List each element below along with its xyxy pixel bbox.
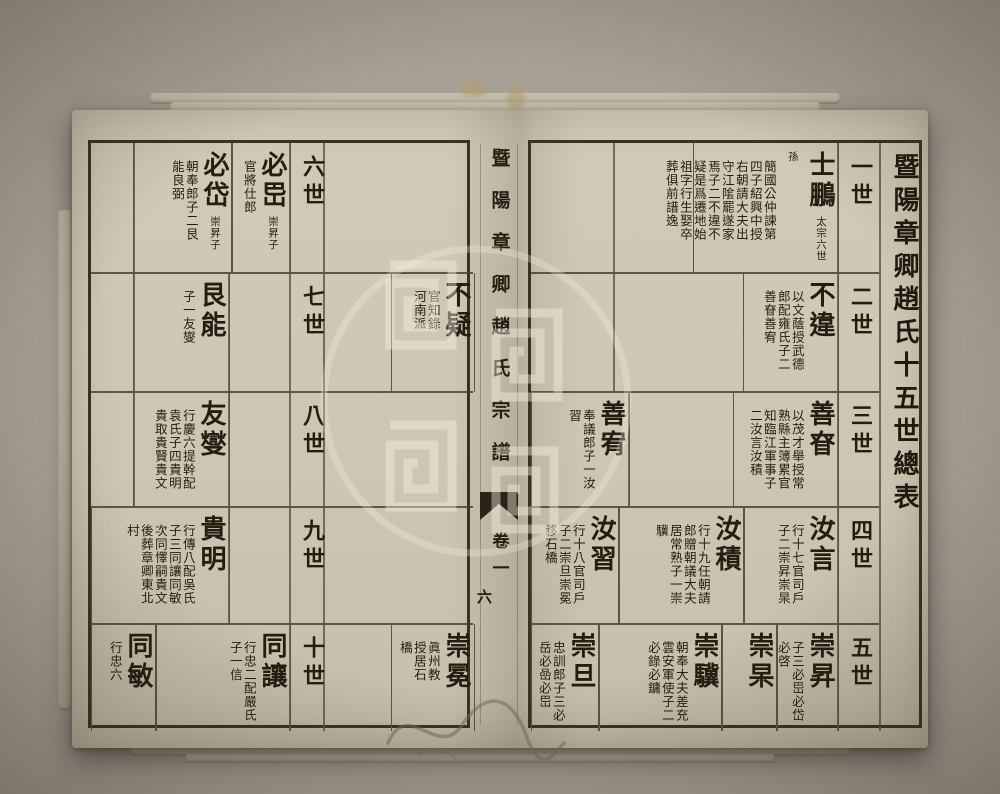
page-stack-edge-bottom2 xyxy=(185,754,775,763)
name-column: 艮能 xyxy=(197,281,225,384)
person-name: 崇杲 xyxy=(745,632,774,692)
generation-label: 七世 xyxy=(296,285,328,341)
genealogy-entry-cell: 不疑官知錄河南派 xyxy=(391,273,475,392)
entry-text: 崇驥朝奉大夫差充雲安軍使子二必錄必鏞 xyxy=(646,632,718,723)
person-name: 不違 xyxy=(806,281,835,341)
genealogy-entry-cell: 崇杲 xyxy=(721,624,778,731)
entry-text: 不違以文蔭授武德郎配雍氏子二善眘善宥 xyxy=(762,281,834,384)
genealogy-entry-cell: 同敏行忠六 xyxy=(91,624,157,731)
name-column: 善眘 xyxy=(806,400,834,499)
entry-annotation: 以茂才舉授常熟縣主簿累官知臨江軍事子二汝言汝積 xyxy=(748,400,804,493)
genealogy-entry-cell: 同讓行忠二配嚴氏子一信 xyxy=(155,624,291,731)
name-column: 汝習 xyxy=(587,515,615,616)
genealogy-entry-cell: 貴明行傳八配吳氏子三同讓同敏次同懌嗣貴文後葬章卿東北村 xyxy=(91,507,230,624)
page-stack-edge-left xyxy=(58,210,71,710)
genealogy-entry-cell: 崇昇子三必岊必岱必啓 xyxy=(776,624,839,731)
entry-text: 善眘以茂才舉授常熟縣主簿累官知臨江軍事子二汝言汝積 xyxy=(748,400,834,499)
person-name: 士鵬 xyxy=(806,151,835,211)
name-column: 必岱崇昇子 xyxy=(200,151,228,265)
genealogy-entry-cell: 崇旦忠訓郎子三必岳必嵒必岊 xyxy=(531,624,600,731)
genealogy-entry-cell: 友燮行慶六提幹配袁氏子四貴明貴取貴賢貴文 xyxy=(133,392,230,507)
entry-annotation: 行十九任朝請郎贈朝議大夫居常熟子一崇驥 xyxy=(654,515,710,608)
generation-label-cell: 七世 xyxy=(289,273,323,392)
person-name: 貴明 xyxy=(197,515,226,575)
person-name: 崇冕 xyxy=(442,632,471,692)
name-column: 貴明 xyxy=(197,515,225,616)
entry-text: 友燮行慶六提幹配袁氏子四貴明貴取貴賢貴文 xyxy=(153,400,225,499)
generation-label: 八世 xyxy=(296,404,328,460)
genealogy-entry-cell: 崇驥朝奉大夫差充雲安軍使子二必錄必鏞 xyxy=(598,624,723,731)
entry-annotation: 簡國公仲諫第四子紹興中授右朝請大夫出守江隂罷遂家焉子二不違不疑是爲遷地始祖字行生… xyxy=(664,151,776,244)
entry-text: 汝積行十九任朝請郎贈朝議大夫居常熟子一崇驥 xyxy=(654,515,740,616)
entry-annotation: 官知錄河南派 xyxy=(412,281,440,340)
spine-column: 暨陽章卿趙氏宗譜 卷一 六 xyxy=(470,140,528,728)
entry-text: 不疑官知錄河南派 xyxy=(412,281,470,384)
name-column: 崇杲 xyxy=(745,632,773,723)
generation-label-cell: 八世 xyxy=(289,392,323,507)
generation-label-cell: 三世 xyxy=(837,392,879,507)
table-title: 暨陽章卿趙氏十五世總表 xyxy=(886,153,923,516)
genealogy-entry-cell: 崇冕眞州教授居石橋 xyxy=(391,624,475,731)
person-name: 汝積 xyxy=(712,515,741,575)
person-name: 崇昇 xyxy=(806,632,835,692)
entry-annotation: 行十八官司戶子二崇旦崇冕移石橋 xyxy=(543,515,585,608)
genealogy-table-right-page: 一世士鵬太宗六世孫簡國公仲諫第四子紹興中授右朝請大夫出守江隂罷遂家焉子二不違不疑… xyxy=(528,140,922,728)
entry-text: 必岱崇昇子朝奉郎子二艮能良弼 xyxy=(170,151,228,265)
generation-label-cell: 二世 xyxy=(837,273,879,392)
page-number: 六 xyxy=(477,586,492,607)
genealogy-entry-cell: 善宥奉議郎子一汝習 xyxy=(531,392,630,507)
entry-text: 必岊崇昇子官將仕郎 xyxy=(242,151,286,265)
name-column: 崇驥 xyxy=(690,632,718,723)
name-column: 士鵬太宗六世孫 xyxy=(778,151,834,265)
name-column: 必岊崇昇子 xyxy=(258,151,286,265)
person-name: 崇驥 xyxy=(690,632,719,692)
name-column: 同讓 xyxy=(258,632,286,723)
entry-annotation: 朝奉大夫差充雲安軍使子二必錄必鏞 xyxy=(646,632,688,725)
name-column: 不違 xyxy=(806,281,834,384)
person-name: 善眘 xyxy=(806,400,835,460)
cell-divider xyxy=(613,143,615,273)
spine-title: 暨陽章卿趙氏宗譜 xyxy=(486,148,513,484)
person-name: 艮能 xyxy=(197,281,226,341)
entry-text: 士鵬太宗六世孫簡國公仲諫第四子紹興中授右朝請大夫出守江隂罷遂家焉子二不違不疑是爲… xyxy=(664,151,834,265)
spine-rule xyxy=(517,144,518,724)
genealogy-entry-cell: 必岱崇昇子朝奉郎子二艮能良弼 xyxy=(133,143,233,273)
entry-annotation: 行慶六提幹配袁氏子四貴明貴取貴賢貴文 xyxy=(153,400,195,493)
entry-annotation: 眞州教授居石橋 xyxy=(398,632,440,691)
person-name: 汝習 xyxy=(587,515,616,575)
entry-text: 汝言行十七官司戶子二崇昇崇杲 xyxy=(776,515,834,616)
entry-annotation: 以文蔭授武德郎配雍氏子二善眘善宥 xyxy=(762,281,804,374)
genealogy-entry-cell: 不違以文蔭授武德郎配雍氏子二善眘善宥 xyxy=(743,273,839,392)
entry-annotation: 行傳八配吳氏子三同讓同敏次同懌嗣貴文後葬章卿東北村 xyxy=(125,515,195,608)
generation-label: 五世 xyxy=(844,636,876,692)
fishtail-ornament xyxy=(480,492,518,520)
person-name: 同敏 xyxy=(124,632,153,692)
generation-label-cell: 九世 xyxy=(289,507,323,624)
column-rule xyxy=(879,143,881,731)
person-name: 必岊 xyxy=(258,151,287,211)
entry-annotation: 朝奉郎子二艮能良弼 xyxy=(170,151,198,244)
generation-label-cell: 五世 xyxy=(837,624,879,731)
generation-label: 九世 xyxy=(296,519,328,575)
generation-label-cell: 四世 xyxy=(837,507,879,624)
generation-label-cell: 十世 xyxy=(289,624,323,731)
generation-label-cell: 六世 xyxy=(289,143,323,273)
genealogy-entry-cell: 士鵬太宗六世孫簡國公仲諫第四子紹興中授右朝請大夫出守江隂罷遂家焉子二不違不疑是爲… xyxy=(693,143,839,273)
person-name: 不疑 xyxy=(442,281,471,341)
generation-label-cell: 一世 xyxy=(837,143,879,273)
person-name: 善宥 xyxy=(597,400,626,460)
cell-divider xyxy=(628,392,630,507)
genealogy-entry-cell: 必岊崇昇子官將仕郎 xyxy=(231,143,291,273)
spine-rule xyxy=(480,144,481,724)
entry-text: 艮能子一友燮 xyxy=(181,281,225,384)
cell-divider xyxy=(133,143,135,273)
lineage-note: 崇昇子 xyxy=(209,216,220,251)
generation-label: 三世 xyxy=(844,404,876,460)
genealogy-entry-cell: 善眘以茂才舉授常熟縣主簿累官知臨江軍事子二汝言汝積 xyxy=(733,392,839,507)
name-column: 不疑 xyxy=(442,281,470,384)
genealogy-entry-cell: 艮能子一友燮 xyxy=(133,273,230,392)
screenshot-root: { "spine": { "title": "暨陽章卿趙氏宗譜", "volum… xyxy=(0,0,1000,794)
person-name: 汝言 xyxy=(806,515,835,575)
name-column: 善宥 xyxy=(597,400,625,499)
name-column: 崇冕 xyxy=(442,632,470,723)
entry-text: 貴明行傳八配吳氏子三同讓同敏次同懌嗣貴文後葬章卿東北村 xyxy=(125,515,225,616)
entry-annotation: 忠訓郎子三必岳必嵒必岊 xyxy=(537,632,565,725)
entry-text: 善宥奉議郎子一汝習 xyxy=(567,400,625,499)
entry-annotation: 行忠六 xyxy=(108,632,122,725)
name-column: 汝積 xyxy=(712,515,740,616)
entry-text: 同敏行忠六 xyxy=(108,632,152,723)
genealogy-table-left-page: 六世必岊崇昇子官將仕郎必岱崇昇子朝奉郎子二艮能良弼七世艮能子一友燮八世友燮行慶六… xyxy=(88,140,470,728)
entry-text: 同讓行忠二配嚴氏子一信 xyxy=(228,632,286,723)
person-name: 同讓 xyxy=(258,632,287,692)
entry-text: 崇旦忠訓郎子三必岳必嵒必岊 xyxy=(537,632,595,723)
generation-label: 一世 xyxy=(844,155,876,211)
book-spread: 六世必岊崇昇子官將仕郎必岱崇昇子朝奉郎子二艮能良弼七世艮能子一友燮八世友燮行慶六… xyxy=(72,110,928,748)
generation-label: 四世 xyxy=(844,519,876,575)
cell-divider xyxy=(133,273,135,392)
cell-divider xyxy=(228,507,230,624)
person-name: 友燮 xyxy=(197,400,226,460)
entry-annotation: 子三必岊必岱必啓 xyxy=(776,632,804,725)
cell-divider xyxy=(228,273,230,392)
generation-label: 二世 xyxy=(844,285,876,341)
name-column: 友燮 xyxy=(197,400,225,499)
name-column: 汝言 xyxy=(806,515,834,616)
generation-label: 十世 xyxy=(296,636,328,692)
volume-label: 卷一 xyxy=(487,532,512,586)
cell-divider xyxy=(133,392,135,507)
name-column: 崇昇 xyxy=(806,632,834,723)
entry-annotation: 行十七官司戶子二崇昇崇杲 xyxy=(776,515,804,608)
entry-text: 汝習行十八官司戶子二崇旦崇冕移石橋 xyxy=(543,515,615,616)
name-column: 崇旦 xyxy=(567,632,595,723)
entry-annotation: 行忠二配嚴氏子一信 xyxy=(228,632,256,725)
entry-text: 崇杲 xyxy=(745,632,773,723)
person-name: 必岱 xyxy=(200,151,229,211)
entry-text: 崇昇子三必岊必岱必啓 xyxy=(776,632,834,723)
entry-annotation: 官將仕郎 xyxy=(242,151,256,244)
name-column: 同敏 xyxy=(124,632,152,723)
person-name: 崇旦 xyxy=(567,632,596,692)
cell-divider xyxy=(613,273,615,392)
genealogy-entry-cell: 汝習行十八官司戶子二崇旦崇冕移石橋 xyxy=(531,507,620,624)
genealogy-entry-cell: 汝積行十九任朝請郎贈朝議大夫居常熟子一崇驥 xyxy=(618,507,745,624)
cell-divider xyxy=(228,392,230,507)
entry-annotation: 奉議郎子一汝習 xyxy=(567,400,595,493)
generation-label: 六世 xyxy=(296,155,328,211)
entry-text: 崇冕眞州教授居石橋 xyxy=(398,632,470,723)
photo-background: 六世必岊崇昇子官將仕郎必岱崇昇子朝奉郎子二艮能良弼七世艮能子一友燮八世友燮行慶六… xyxy=(0,0,1000,794)
genealogy-entry-cell: 汝言行十七官司戶子二崇昇崇杲 xyxy=(743,507,839,624)
lineage-note: 崇昇子 xyxy=(267,216,278,251)
entry-annotation: 子一友燮 xyxy=(181,281,195,374)
